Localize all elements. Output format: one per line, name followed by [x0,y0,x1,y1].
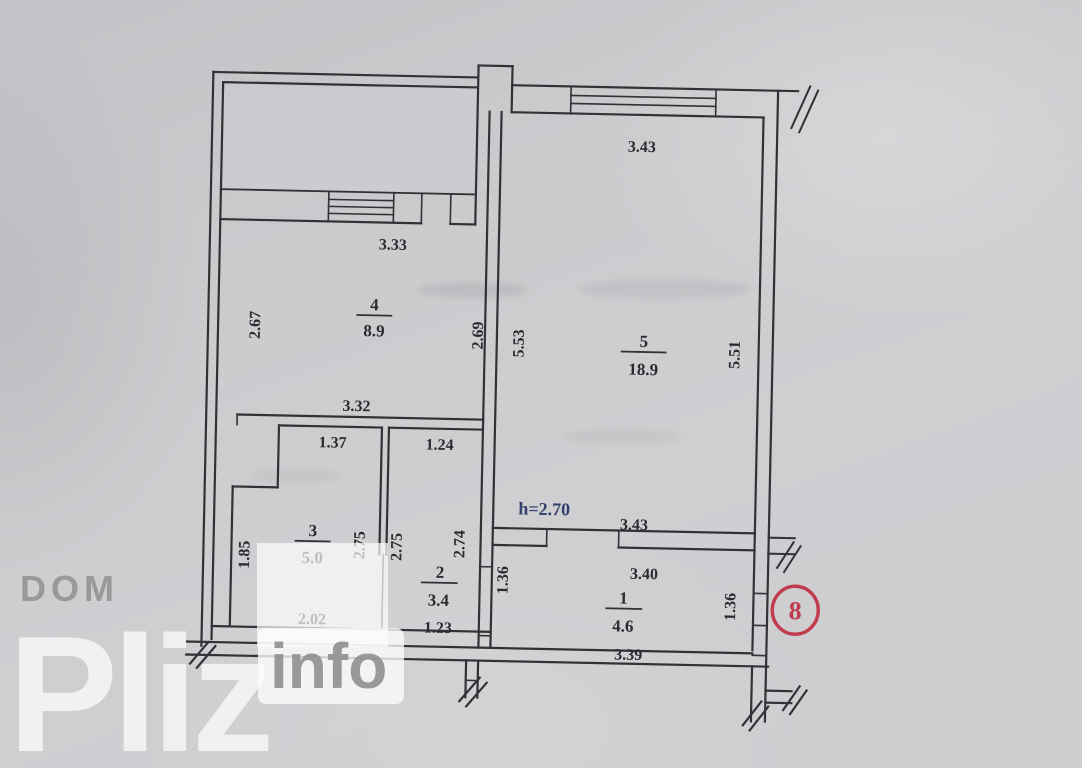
dim-room5-right: 5.51 [726,341,744,369]
room2-number: 2 [436,563,445,582]
wall-room1-top [493,545,755,550]
dim-room2-bottom: 1.23 [424,619,452,637]
wall-break-top-right [791,86,818,133]
dim-room2-right: 2.74 [451,530,469,558]
room2-area: 3.4 [428,591,450,610]
wall-loggia-top-outer [213,72,476,78]
window5-jambs [571,86,717,116]
room1-fraction-line [606,608,641,609]
balcony-door-jamb-right [450,194,451,224]
wall-break-mid-right [777,542,801,572]
entry-door-ticks [752,593,767,655]
room1-number: 1 [619,589,628,608]
wall-exterior-right-outer [765,91,778,722]
wall-exterior-right-inner [752,117,763,650]
dim-room3-left: 1.85 [236,541,254,569]
wall-column-top [479,65,513,66]
wall-exterior-left-inner [212,82,224,639]
room3-number: 3 [308,521,317,540]
balcony-door-jamb-left [421,193,422,223]
wall-break-bottom-center [459,677,487,707]
dim-room1-left: 1.36 [495,566,513,594]
dim-room1-right: 1.36 [722,593,740,621]
wall-room5-top-inner [512,112,764,117]
room2-fraction-line [422,582,457,583]
dim-room5-bottom: 3.43 [620,517,648,535]
dim-room4-bottom: 3.32 [342,398,370,416]
dim-room1-bottom: 3.39 [614,646,642,664]
wall-room4-bottom [237,415,483,420]
dim-room4-top: 3.33 [379,236,407,254]
watermark-info-text: info [270,630,387,702]
entrance-stamp-number: 8 [788,596,802,625]
loggia-floor [223,84,476,192]
room5-area: 18.9 [628,360,658,380]
dim-room5-top: 3.43 [628,139,656,157]
wall-room2-top [389,428,483,430]
room4-area: 8.9 [363,321,385,340]
dim-room1-top: 3.40 [630,566,658,584]
room3-fraction-line [296,541,330,542]
wall-room5-top-outer [512,85,798,91]
room5-number: 5 [639,332,648,351]
window4-panes [328,199,393,214]
room4-fraction-line [357,315,391,316]
dim-room4-right: 2.69 [470,321,488,349]
wall-room3-left-upper [278,425,279,487]
room4-number: 4 [370,295,379,314]
dim-room5-left: 5.53 [510,329,528,357]
wall-room4-top-b [450,224,475,225]
dim-room2-left: 2.75 [388,533,406,561]
wall-room3-top [279,425,382,427]
room1-area: 4.6 [612,616,634,635]
dim-room4-left: 2.67 [247,311,265,339]
watermark-pliz-text: Pliz [8,612,268,768]
dim-room2-top: 1.24 [425,436,453,454]
wall-room3-step [233,486,278,487]
wall-loggia-right [475,65,478,224]
room5-fraction-line [622,352,666,353]
scanned-floorplan-photo: 3.43 3.33 2.67 2.69 5.53 5.51 4 8.9 5 18… [0,0,1082,768]
wall-exterior-left-outer [201,72,213,646]
dim-room3-top: 1.37 [318,434,346,452]
ceiling-height-note: h=2.70 [518,498,570,519]
wall-stub-right-h [765,691,791,704]
wall-room3-room2 [379,428,389,555]
window5-panes [571,95,716,106]
wall-column-right [512,66,513,112]
door-room1-jambs [547,529,619,548]
wall-room4-top-a [220,219,421,223]
